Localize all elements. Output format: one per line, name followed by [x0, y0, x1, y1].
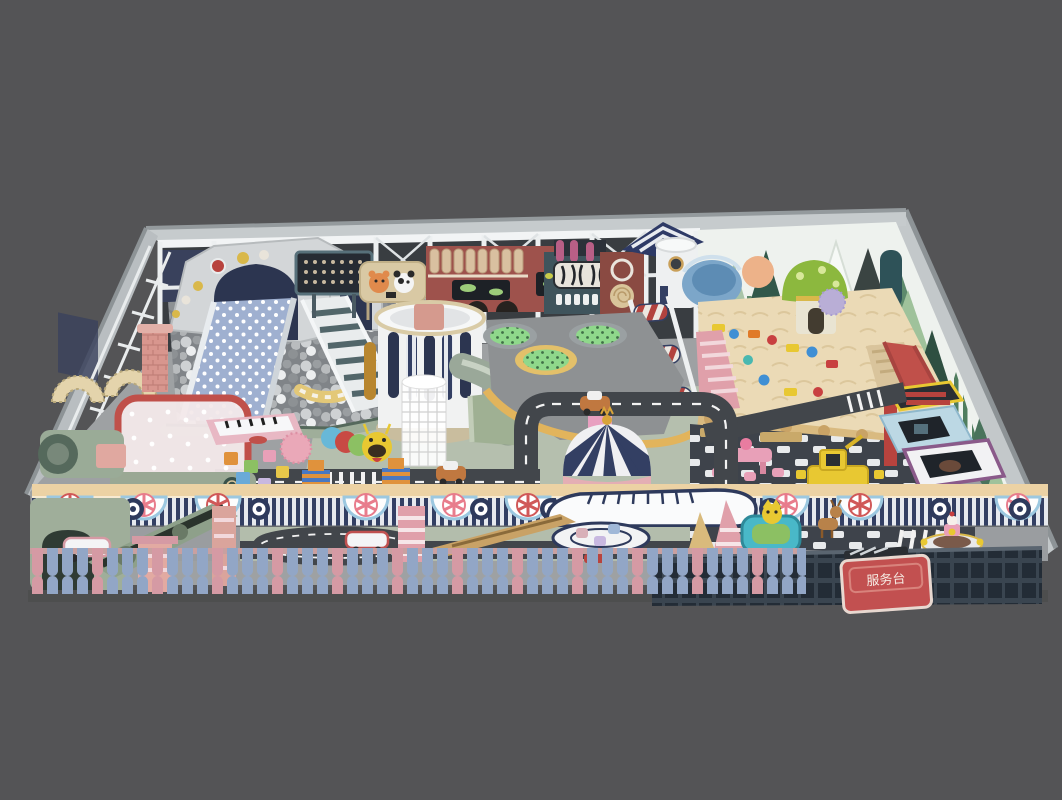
- green-roller-machine: [38, 430, 126, 478]
- playground-scene: 服务台: [0, 0, 1062, 800]
- pink-chimney: [142, 330, 168, 392]
- trampoline: [483, 323, 537, 349]
- pink-spiky-ball: [281, 433, 311, 463]
- peach-ball: [742, 256, 774, 288]
- trampoline: [569, 322, 627, 348]
- spiral-cage: [402, 375, 446, 466]
- service-desk-label: 服务台: [866, 571, 906, 590]
- picket-fence: [30, 548, 806, 594]
- spiky-ball: [819, 289, 845, 315]
- trampoline: [515, 345, 577, 375]
- playground-render: 服务台: [0, 0, 1062, 800]
- service-desk-sign: 服务台: [840, 544, 932, 613]
